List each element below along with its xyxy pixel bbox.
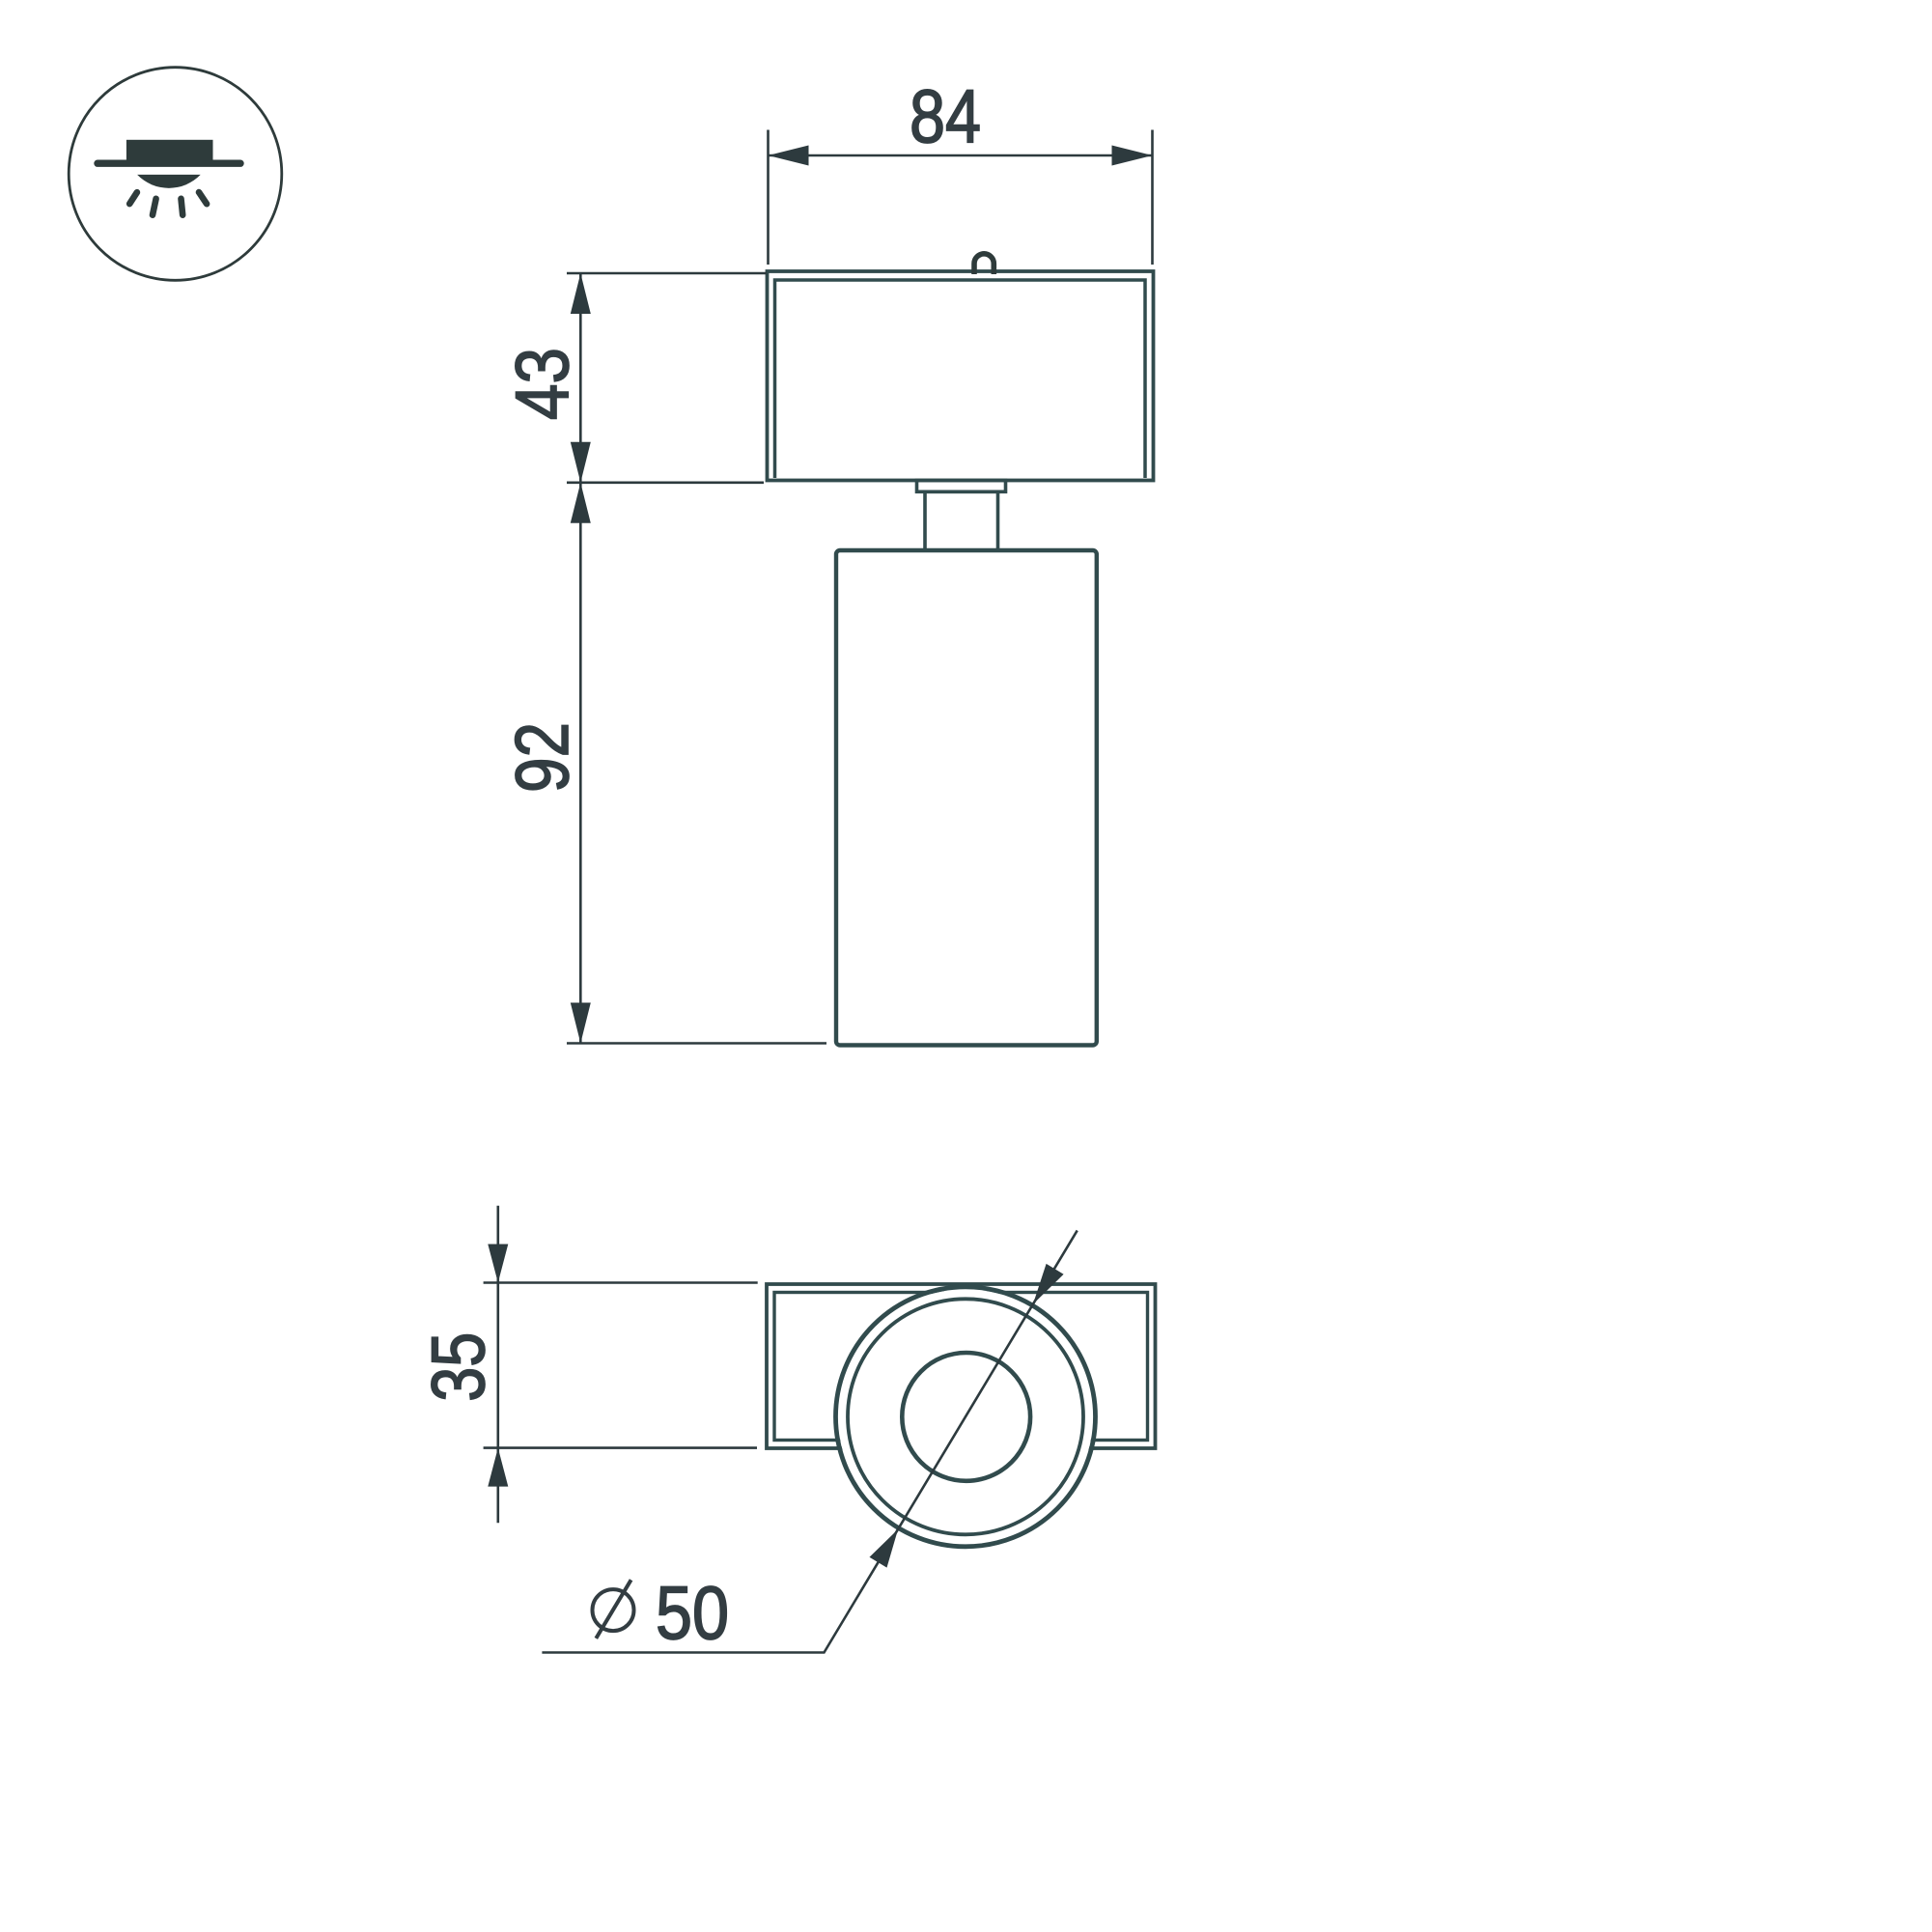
svg-text:84: 84 <box>910 73 981 158</box>
svg-text:50: 50 <box>656 1570 729 1655</box>
svg-text:43: 43 <box>499 348 584 420</box>
svg-text:92: 92 <box>499 722 584 793</box>
svg-text:35: 35 <box>415 1332 500 1402</box>
